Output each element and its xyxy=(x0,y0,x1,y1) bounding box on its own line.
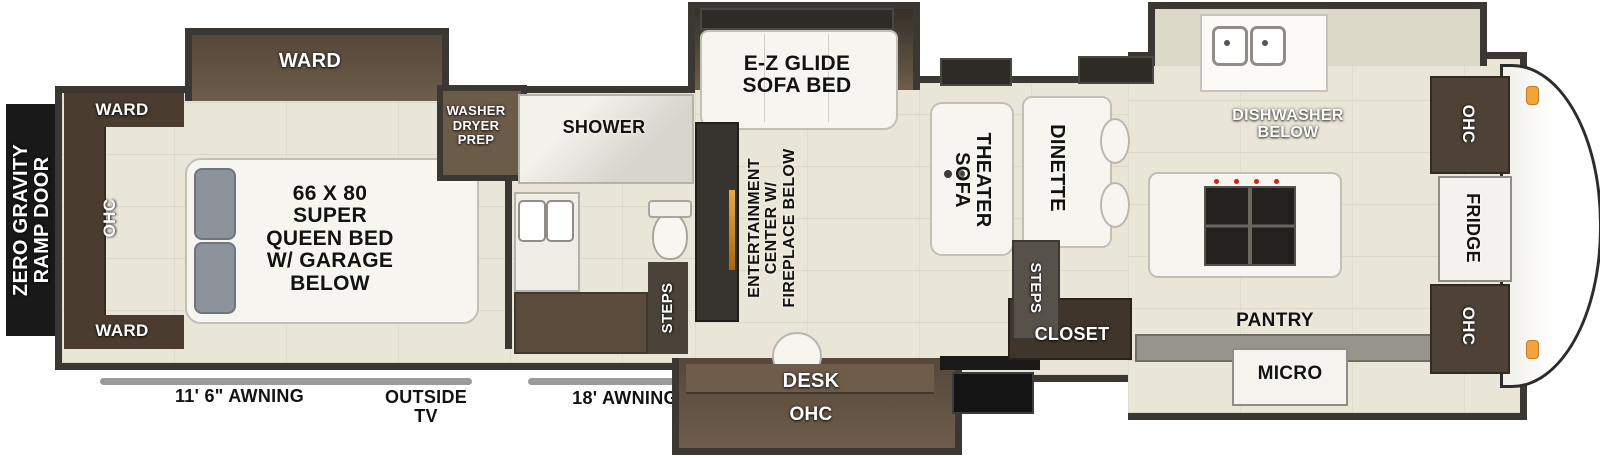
stove-knob-icon xyxy=(1274,179,1279,184)
awning-bar-left xyxy=(100,378,472,385)
bed-pillow-icon xyxy=(194,242,236,314)
entertainment-label: ENTERTAINMENT CENTER W/ FIREPLACE BELOW xyxy=(744,148,800,308)
closet-label: CLOSET xyxy=(1022,324,1122,346)
bath-sink-icon xyxy=(518,200,546,242)
roof-vent-icon xyxy=(1078,56,1154,84)
ohc-top-label: OHC xyxy=(1455,80,1481,168)
dinette-label: DINETTE xyxy=(1042,108,1070,228)
faucet-icon xyxy=(1262,40,1268,46)
pantry-label: PANTRY xyxy=(1205,310,1345,332)
marker-light-icon xyxy=(1526,340,1539,359)
front-cap xyxy=(1500,64,1600,388)
stove-icon xyxy=(1204,186,1296,266)
faucet-icon xyxy=(1224,40,1230,46)
outside-tv-label: OUTSIDE TV xyxy=(382,387,470,427)
rv-floorplan: 11' 6" AWNING OUTSIDE TV 18' AWNING ZERO… xyxy=(0,0,1600,458)
dinette-chair-icon xyxy=(1100,182,1130,228)
ward-bottom-label: WARD xyxy=(78,320,166,342)
toilet-icon xyxy=(652,212,688,260)
dishwasher-label: DISHWASHER BELOW xyxy=(1218,102,1358,146)
ward-corner-label: WARD xyxy=(78,99,166,121)
stove-knob-icon xyxy=(1214,179,1219,184)
desk-label: DESK xyxy=(726,370,896,394)
awning-right-label: 18' AWNING xyxy=(565,389,685,409)
bed-label: 66 X 80 SUPER QUEEN BED W/ GARAGE BELOW xyxy=(262,172,398,306)
micro-label: MICRO xyxy=(1240,362,1340,386)
kitchen-steps-label: STEPS xyxy=(1023,246,1047,330)
toilet-tank xyxy=(648,200,692,218)
bath-sink-icon xyxy=(546,200,574,242)
ramp-door-label: ZERO GRAVITY RAMP DOOR xyxy=(8,140,56,300)
bed-pillow-icon xyxy=(194,168,236,240)
stove-knob-icon xyxy=(1254,179,1259,184)
ohc-bottom-label: OHC xyxy=(1455,282,1481,370)
bath-steps-label: STEPS xyxy=(656,266,680,350)
bath-lower-cabinet xyxy=(514,292,648,354)
kitchen-sink-icon xyxy=(1212,26,1248,66)
roof-vent-icon xyxy=(700,8,894,30)
theater-sofa-label: THEATER SOFA xyxy=(946,120,998,240)
entry-step xyxy=(952,372,1034,414)
awning-left-label: 11' 6" AWNING xyxy=(162,387,317,407)
dinette-chair-icon xyxy=(1100,118,1130,164)
kitchen-sink-icon xyxy=(1250,26,1286,66)
bedroom-ohc-label: OHC xyxy=(97,173,123,263)
ward-slide-label: WARD xyxy=(240,50,380,74)
stove-knob-icon xyxy=(1234,179,1239,184)
fireplace-icon xyxy=(729,190,735,270)
marker-light-icon xyxy=(1526,86,1539,105)
fridge-label: FRIDGE xyxy=(1459,178,1485,278)
sofa-bed-label: E-Z GLIDE SOFA BED xyxy=(722,46,872,104)
shower-label: SHOWER xyxy=(528,116,680,140)
desk-ohc-label: OHC xyxy=(726,404,896,426)
washer-dryer-prep-label: WASHER DRYER PREP xyxy=(440,94,512,158)
roof-vent-icon xyxy=(940,58,1012,86)
